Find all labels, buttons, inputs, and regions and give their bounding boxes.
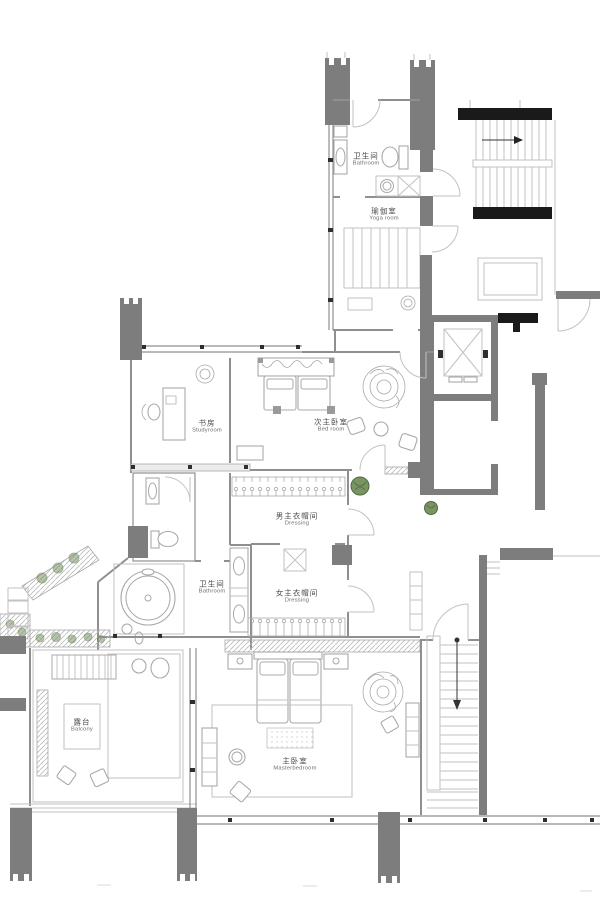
room-label-zh: 女主衣帽间 <box>276 589 319 598</box>
top-bathroom <box>325 58 435 330</box>
room-label-dressing-women: 女主衣帽间 Dressing <box>276 589 319 606</box>
room-label-zh: 瑜伽室 <box>369 207 399 216</box>
room-label-zh: 男主衣帽间 <box>276 512 319 521</box>
room-label-zh: 露台 <box>71 718 93 727</box>
room-label-zh: 卫生间 <box>353 152 380 161</box>
room-label-en: Studyroom <box>192 428 222 435</box>
floorplan-page: 卫生间 Bathroom 瑜伽室 Yoga room 书房 Studyroom … <box>0 0 600 900</box>
room-label-en: Bathroom <box>353 161 380 168</box>
room-label-en: Dressing <box>276 598 319 605</box>
room-label-yoga-room: 瑜伽室 Yoga room <box>369 207 399 224</box>
elevator <box>420 313 538 495</box>
room-label-en: Balcony <box>71 727 93 734</box>
upper-staircase <box>420 108 600 331</box>
room-label-en: Yoga room <box>369 216 399 223</box>
room-label-balcony: 露台 Balcony <box>71 718 93 735</box>
room-label-zh: 书房 <box>192 419 222 428</box>
room-label-zh: 次主卧室 <box>314 418 348 427</box>
corridor <box>250 445 479 640</box>
room-label-en: Masterbedroom <box>273 766 316 773</box>
corridor-walls-right <box>479 373 600 815</box>
room-label-en: Bathroom <box>199 589 226 596</box>
room-label-dressing-men: 男主衣帽间 Dressing <box>276 512 319 529</box>
structural-columns <box>10 808 400 883</box>
master-bedroom-area <box>202 640 421 815</box>
room-label-zh: 主卧室 <box>273 757 316 766</box>
room-label-studyroom: 书房 Studyroom <box>192 419 222 436</box>
lower-staircase <box>427 636 478 808</box>
room-label-bathroom-master: 卫生间 Bathroom <box>199 580 226 597</box>
room-label-en: Dressing <box>276 521 319 528</box>
bedroom-area <box>237 352 434 460</box>
room-label-bathroom-top: 卫生间 Bathroom <box>353 152 380 169</box>
room-label-zh: 卫生间 <box>199 580 226 589</box>
room-label-en: Bed room <box>314 427 348 434</box>
room-label-master-bedroom: 主卧室 Masterbedroom <box>273 757 316 774</box>
room-label-bedroom: 次主卧室 Bed room <box>314 418 348 435</box>
yoga-room-area <box>333 228 420 352</box>
dressing-area <box>232 470 374 637</box>
